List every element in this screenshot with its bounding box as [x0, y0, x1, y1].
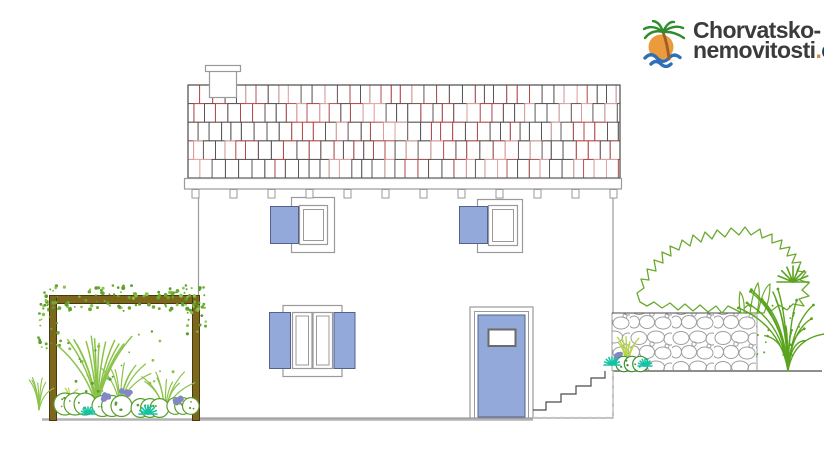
pergola-vine [44, 299, 47, 302]
roof-tile-pattern [188, 85, 620, 178]
roof-tile [275, 159, 285, 178]
roof-tile [352, 159, 362, 178]
pergola-vine [176, 303, 179, 306]
site-logo: Chorvatsko- nemovitosti.cz [641, 20, 824, 68]
roof-tile [386, 104, 397, 123]
roof-tile [595, 122, 608, 141]
pergola-vine [142, 295, 145, 298]
grass-leaf [792, 312, 795, 315]
pergola-vine [158, 307, 161, 310]
pergola-vine [100, 292, 102, 294]
roof-tile [350, 85, 361, 104]
roof-tile [337, 85, 350, 104]
pergola-vine [197, 305, 199, 307]
pergola-vine [196, 308, 198, 310]
grass-seed-head [761, 298, 764, 301]
pergola-vine [106, 301, 110, 305]
chimney-cap [206, 66, 241, 72]
roof-tile [313, 122, 325, 141]
roof-tile [188, 141, 194, 160]
roof-tile [391, 85, 400, 104]
roof-tile [297, 104, 307, 123]
window-shutter [271, 207, 299, 244]
pergola-vine [96, 301, 98, 303]
pergola-vine [42, 305, 44, 307]
shrub-leaf [87, 375, 89, 377]
bush-dot [620, 366, 622, 368]
fountain-grass-stem [765, 336, 788, 371]
roof-tile [188, 159, 200, 178]
pergola-vine [52, 306, 55, 309]
roof-tile [507, 85, 518, 104]
pergola-vine [57, 308, 59, 310]
pergola-vine [88, 307, 92, 311]
pergola-vine [130, 284, 133, 287]
roof-tile [188, 104, 194, 123]
roof-tile [480, 104, 492, 123]
roof-tile [309, 159, 320, 178]
pergola-vine [190, 311, 193, 314]
roof-tile [267, 122, 279, 141]
roof-tile [494, 85, 507, 104]
roof-tile [268, 85, 279, 104]
pergola-vine [179, 294, 183, 298]
roof-tile [254, 122, 267, 141]
roof-tile [252, 159, 265, 178]
roof-tile [594, 159, 606, 178]
roof-tile [605, 104, 617, 123]
roof-tile [507, 159, 518, 178]
roof-tile [600, 141, 610, 160]
roof-tile [444, 141, 456, 160]
pergola-vine [167, 296, 170, 299]
roof-tile [215, 104, 227, 123]
roof-tile [493, 141, 505, 160]
bush-dot [114, 403, 117, 406]
roof-tile [554, 85, 564, 104]
shrub-leaf [75, 380, 78, 383]
roof-tile [246, 141, 259, 160]
roof-tile [395, 141, 406, 160]
pergola-vine [132, 297, 135, 300]
pergola-vine [109, 304, 112, 307]
roof-tile [610, 141, 620, 160]
roof-tile [228, 104, 241, 123]
pergola-vine [78, 296, 80, 298]
grass-seed-head [746, 302, 749, 305]
roof-tile [361, 85, 370, 104]
house-body [199, 188, 614, 418]
pergola-vine [165, 305, 167, 307]
pergola-vine [128, 306, 131, 309]
roof-tile [442, 159, 454, 178]
roof [185, 66, 622, 199]
roof-tile [253, 104, 265, 123]
roof-tile [205, 104, 216, 123]
pergola-vine [50, 343, 52, 345]
pergola-vine [192, 306, 194, 308]
roof-tile [577, 85, 587, 104]
shrub-leaf [108, 378, 111, 381]
roof-tile [515, 104, 525, 123]
grass-leaf [765, 341, 767, 343]
pergola-vine [186, 296, 188, 298]
grass-seed-head [810, 317, 813, 320]
pergola-vine [96, 306, 99, 309]
roof-tile [284, 141, 297, 160]
roof-tile [518, 159, 530, 178]
roof-tile [518, 141, 530, 160]
grass-leaf [756, 353, 758, 355]
roof-tile [412, 85, 424, 104]
roof-tile [239, 159, 252, 178]
roof-tile [437, 85, 450, 104]
roof-tile [216, 141, 225, 160]
bush-dot [155, 405, 157, 407]
shrub-leaf [91, 382, 94, 385]
roof-tile [564, 85, 577, 104]
roof-tile [231, 122, 242, 141]
canopy-outline [637, 227, 809, 313]
bush-dot [63, 397, 65, 399]
roof-tile [194, 141, 204, 160]
roof-outline [188, 85, 620, 178]
roof-tile [237, 85, 246, 104]
pergola-vine [85, 299, 88, 302]
roof-tile [241, 104, 253, 123]
roof-tile [561, 122, 573, 141]
pergola-vine [156, 296, 160, 300]
roof-tile [449, 85, 462, 104]
pergola-vine [185, 284, 188, 287]
rafter-tail [268, 190, 275, 199]
pergola-vine [199, 324, 202, 327]
roof-tile [433, 104, 442, 123]
roof-tile [329, 159, 339, 178]
roof-tile [535, 104, 547, 123]
pergola-vine [56, 322, 58, 324]
bush-dot [61, 398, 63, 400]
roof-tile [212, 159, 225, 178]
pergola-vine [196, 331, 198, 333]
rafter-tail [610, 190, 617, 199]
entry-door [470, 307, 533, 418]
roof-tile [429, 159, 442, 178]
roof-tile [198, 122, 209, 141]
pergola-vine [174, 292, 176, 294]
roof-tile [466, 159, 475, 178]
roof-tile [484, 85, 493, 104]
pergola-vine [49, 316, 51, 318]
bush [111, 396, 132, 417]
rafter-tail [230, 190, 237, 199]
grass-leaf [766, 335, 768, 337]
elevation-page: Chorvatsko- nemovitosti.cz [0, 0, 824, 459]
rafter-tail [382, 190, 389, 199]
roof-tile [279, 85, 289, 104]
bush-dot [190, 401, 192, 403]
pergola-vine [89, 288, 91, 290]
roof-fascia [185, 179, 622, 190]
roof-tile [370, 85, 381, 104]
roof-tile [593, 104, 605, 123]
roof-tile [188, 122, 198, 141]
roof-tile [551, 141, 563, 160]
pergola-vine [56, 331, 60, 335]
pergola-vine [38, 340, 42, 344]
roof-tile [225, 159, 238, 178]
grass-leaf [789, 305, 791, 307]
rafter-tail [534, 190, 541, 199]
bush-dot [69, 400, 71, 402]
roof-tile [485, 159, 498, 178]
roof-tile [562, 159, 574, 178]
pergola-vine [184, 292, 186, 294]
roof-tile [348, 122, 361, 141]
roof-tile [551, 122, 561, 141]
roof-tile [405, 159, 418, 178]
logo-line2-word: nemovitosti [693, 37, 815, 63]
pergola-vine [182, 287, 185, 290]
chimney [206, 66, 241, 98]
pergola-vine [45, 342, 48, 345]
roof-tile [321, 141, 334, 160]
roof-tile [607, 159, 619, 178]
roof-tile [454, 104, 467, 123]
flower-cluster [119, 389, 124, 394]
roof-tile [542, 141, 551, 160]
shrub-leaf [85, 390, 88, 393]
roof-tile [325, 85, 337, 104]
roof-tile [188, 85, 200, 104]
roof-tile [302, 122, 313, 141]
pergola-vine [47, 304, 49, 306]
pergola-vine [74, 306, 76, 308]
roof-tile [265, 104, 276, 123]
pergola-vine [68, 310, 70, 312]
roof-tile [329, 104, 341, 123]
lower-window [270, 306, 356, 377]
shrub-leaf [115, 354, 117, 356]
roof-tile [384, 122, 396, 141]
roof-tile [477, 122, 490, 141]
pergola-vine [80, 306, 83, 309]
roof-tile [542, 122, 552, 141]
pergola-vine [198, 301, 201, 304]
pergola-vine [188, 319, 190, 321]
pergola-vine [186, 332, 189, 335]
roof-tile [550, 159, 563, 178]
chimney-body [210, 71, 237, 98]
bush-dot [626, 364, 628, 366]
roof-tile [431, 141, 444, 160]
roof-tile [529, 159, 540, 178]
roof-tile [607, 85, 617, 104]
roof-tile [490, 122, 500, 141]
pergola-vine [120, 291, 122, 293]
roof-tile [341, 104, 351, 123]
pergola-vine [193, 294, 197, 298]
pergola-vine [169, 287, 172, 290]
grass-leaf [789, 343, 792, 346]
window-shutter [460, 207, 488, 244]
pergola-vine [56, 296, 58, 298]
roof-tile [334, 141, 343, 160]
roof-tile [406, 141, 418, 160]
roof-tile [307, 104, 320, 123]
pergola-vine [169, 309, 172, 312]
grass-seed-head [737, 307, 740, 310]
roof-tile [424, 85, 437, 104]
pergola-vine [41, 346, 43, 348]
pergola-vine [164, 293, 168, 297]
pergola-vine [204, 307, 206, 309]
pergola-vine [176, 289, 180, 293]
roof-tile [288, 85, 301, 104]
pergola-vine [44, 294, 48, 298]
pergola-vine [203, 294, 205, 296]
roof-tile [354, 141, 364, 160]
pergola-vine [51, 301, 55, 305]
palm-tree-sun-waves-icon [641, 20, 691, 68]
pergola-vine [47, 308, 49, 310]
roof-tile [385, 159, 395, 178]
roof-tile [498, 159, 507, 178]
roof-tile [465, 122, 477, 141]
shrub-leaf [128, 351, 130, 353]
shrub-leaf [121, 365, 123, 367]
pergola-vine [117, 286, 120, 289]
grass-leaf [782, 307, 784, 309]
house-wall [199, 188, 614, 418]
pergola-vine [59, 340, 62, 343]
roof-tile [467, 141, 480, 160]
roof-tile [320, 104, 329, 123]
shrub-leaf [152, 359, 155, 362]
roof-tile [421, 104, 433, 123]
tree-canopy [637, 227, 809, 313]
pergola-vine [50, 328, 52, 330]
shrub-leaf [67, 342, 69, 344]
roof-tile [503, 104, 514, 123]
bush-dot [137, 404, 140, 407]
roof-tile [608, 122, 619, 141]
pergola-vine [200, 314, 203, 317]
roof-tile [350, 104, 363, 123]
roof-tile [326, 122, 337, 141]
shrub-leaf [106, 372, 108, 374]
roof-tile [540, 159, 550, 178]
roof-tile [364, 141, 374, 160]
roof-tile [421, 122, 432, 141]
pergola-vine [94, 286, 98, 290]
pergola-vine [204, 325, 207, 328]
pergola-vine [49, 288, 51, 290]
roof-tile [200, 159, 212, 178]
bush-dot [61, 406, 63, 408]
pergola-vine [90, 304, 93, 307]
pergola-vine [202, 303, 205, 306]
roof-tile [236, 141, 246, 160]
roof-tile [576, 141, 588, 160]
roof-tile [573, 122, 584, 141]
flower-cluster [105, 393, 110, 398]
roof-tile [343, 141, 353, 160]
grass-leaf [792, 314, 794, 316]
shrub-leaf [97, 390, 100, 393]
roof-tile [475, 85, 484, 104]
roof-tile [475, 159, 485, 178]
roof-tile [510, 122, 520, 141]
roof-tile [336, 122, 348, 141]
shrub-leaf [151, 330, 153, 332]
grass-leaf [757, 334, 759, 336]
pergola-vine [102, 287, 105, 290]
bush-dot [193, 408, 195, 410]
roof-tile [542, 85, 554, 104]
shrub-leaf [153, 380, 155, 382]
grass-leaf [772, 305, 774, 307]
roof-tile [271, 141, 283, 160]
pergola-vine [157, 291, 160, 294]
roof-tile [574, 159, 584, 178]
roof-tile [431, 122, 440, 141]
shrub-leaf [81, 360, 84, 363]
pergola-vine [189, 309, 192, 312]
pergola-vine [145, 292, 149, 296]
pergola-vine [43, 291, 46, 294]
roof-tile [339, 159, 351, 178]
pergola-vine [54, 286, 57, 289]
pergola-vine [113, 293, 115, 295]
pergola-vine [109, 293, 111, 295]
shrub-leaf [94, 349, 96, 351]
grass-leaf [798, 326, 800, 328]
roof-tile [301, 85, 312, 104]
grass-seed-head [777, 288, 780, 291]
roof-tile [381, 85, 391, 104]
roof-tile [203, 141, 215, 160]
roof-tile [374, 104, 386, 123]
roof-tile [372, 159, 385, 178]
pergola-vine [54, 301, 57, 304]
roof-tile [363, 104, 374, 123]
roof-tile [529, 122, 541, 141]
grass-leaf [763, 351, 765, 353]
shrub-leaf [101, 390, 103, 392]
roof-tile [408, 122, 421, 141]
rafter-tail [306, 190, 313, 199]
roof-tile [418, 159, 429, 178]
pergola-vine [152, 305, 155, 308]
roof-tile [395, 122, 408, 141]
bush-dot [98, 406, 100, 408]
roof-tile [408, 104, 421, 123]
pergola-vine [202, 286, 205, 289]
roof-tile [571, 104, 581, 123]
window-sash [313, 313, 333, 369]
roof-tile [441, 122, 453, 141]
roof-tile [492, 104, 503, 123]
roof-tile [225, 141, 236, 160]
roof-tile [505, 141, 518, 160]
roof-tile [530, 141, 542, 160]
roof-tile [258, 141, 271, 160]
pergola-vine [52, 290, 54, 292]
roof-tile [373, 141, 385, 160]
pergola-vine [95, 294, 97, 296]
shrub-leaf [159, 370, 161, 372]
